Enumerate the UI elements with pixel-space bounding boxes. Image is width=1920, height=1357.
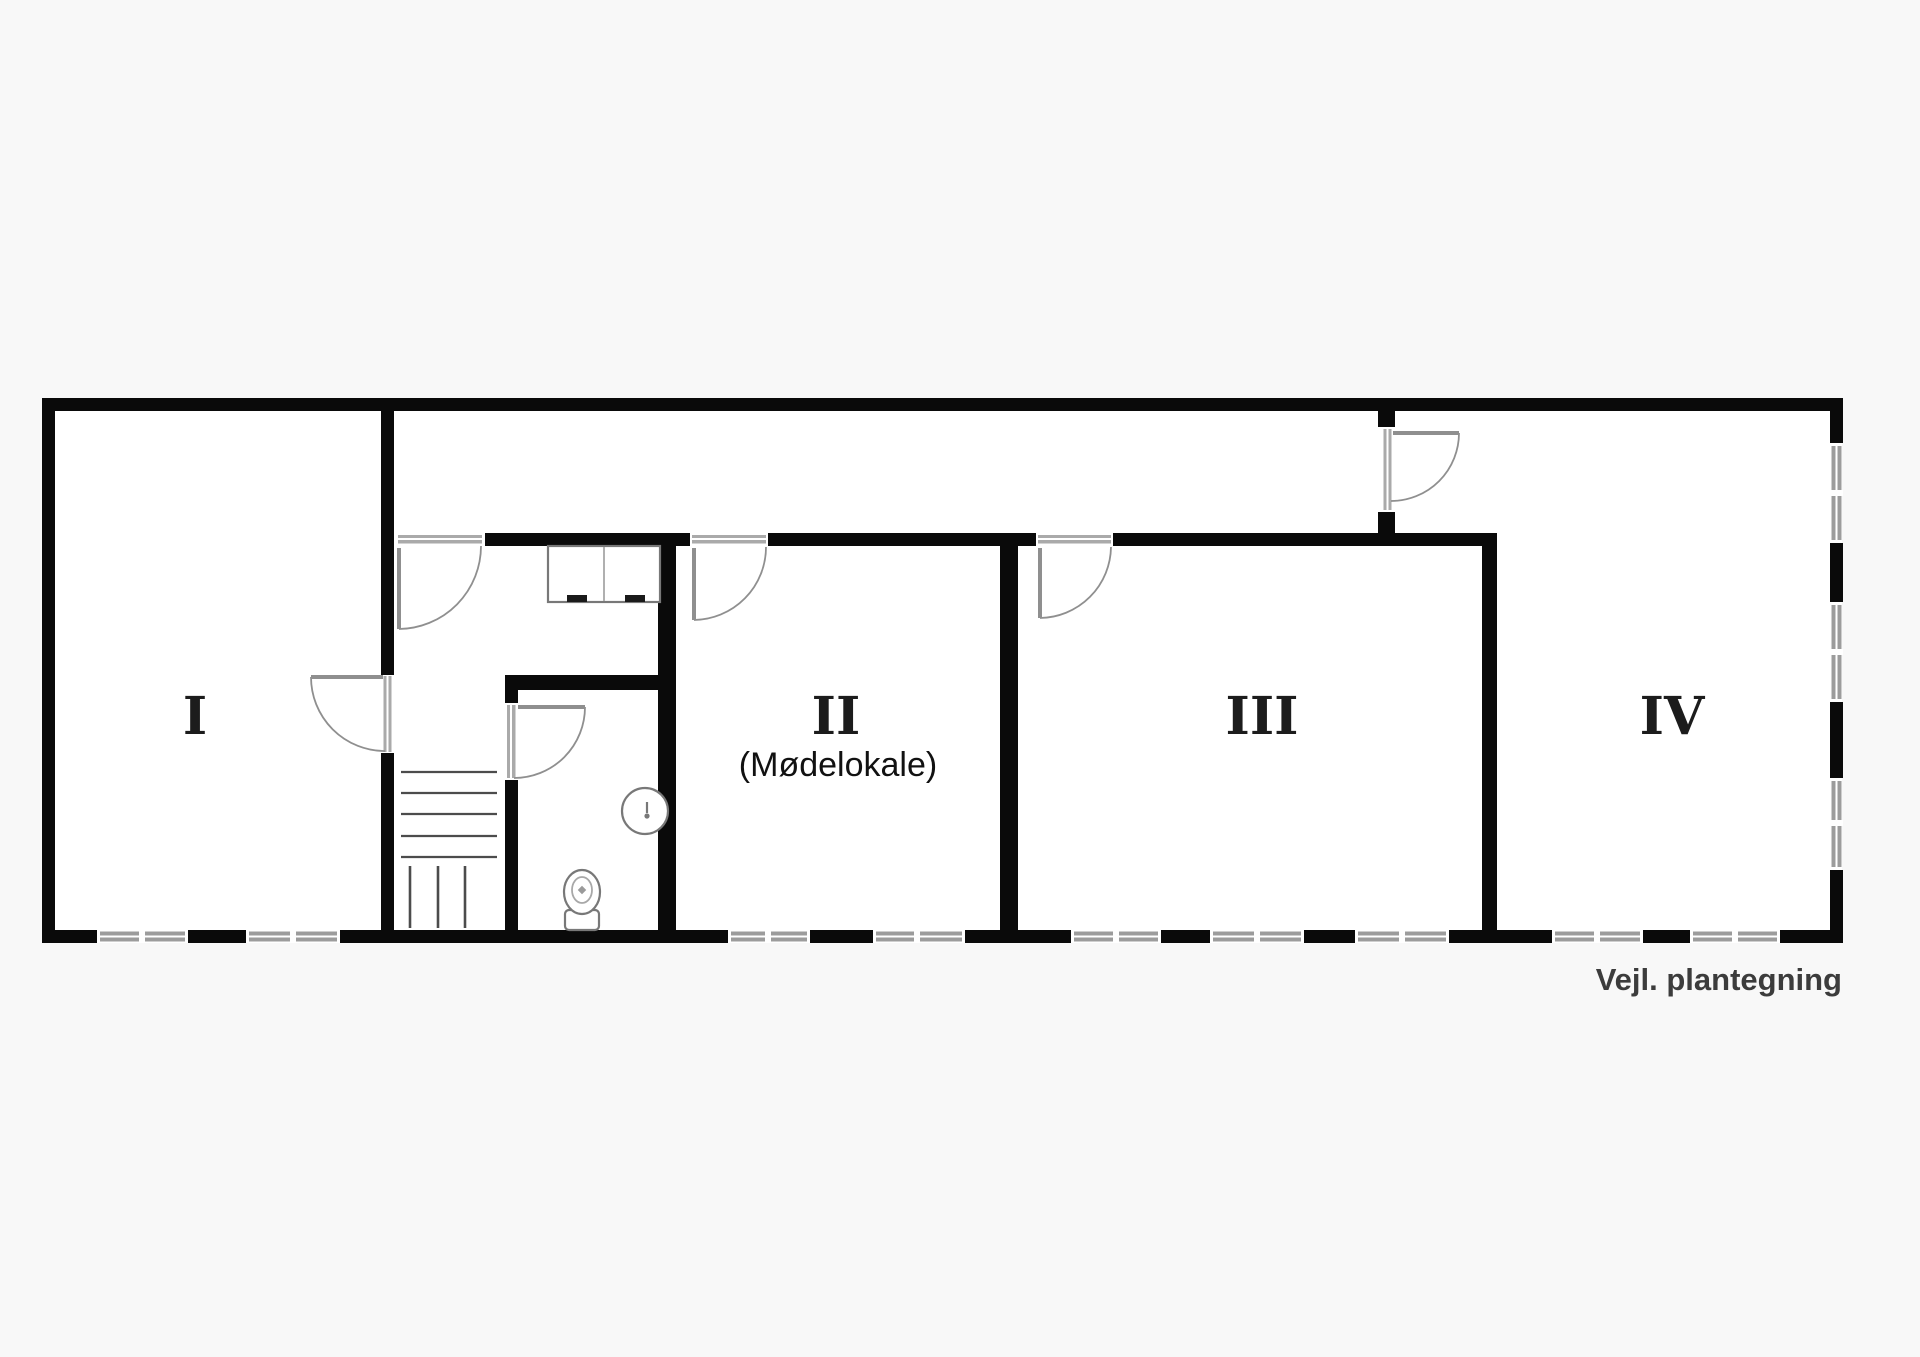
wall-room2-room3 bbox=[1000, 533, 1018, 930]
room4-door-jamb-top bbox=[1378, 411, 1395, 427]
wall-room1-lower bbox=[381, 753, 394, 930]
room-3-label: III bbox=[1226, 686, 1299, 747]
room-2-sublabel: (Mødelokale) bbox=[739, 746, 937, 784]
outer-wall-top bbox=[42, 398, 1842, 411]
outer-wall-left bbox=[42, 398, 55, 943]
wc-west-wall bbox=[505, 690, 518, 703]
plan-caption: Vejl. plantegning bbox=[1596, 962, 1842, 997]
room-2-label: II bbox=[812, 686, 861, 747]
building-floor bbox=[42, 398, 1842, 943]
outer-wall-bottom bbox=[42, 930, 97, 943]
floor-plan-drawing: I II (Mødelokale) III IV Vejl. plantegni… bbox=[0, 0, 1920, 1357]
wc-north-wall bbox=[505, 675, 658, 690]
floor-plan-page: I II (Mødelokale) III IV Vejl. plantegni… bbox=[0, 0, 1920, 1357]
wall-room3-room4 bbox=[1482, 533, 1497, 930]
right-windows bbox=[1830, 446, 1843, 867]
outer-wall-right bbox=[1830, 398, 1843, 443]
cabinet bbox=[548, 546, 660, 602]
toilet-icon bbox=[564, 870, 600, 930]
washbasin-icon bbox=[622, 788, 668, 834]
room-1-label: I bbox=[183, 686, 207, 747]
wall-room1-upper bbox=[381, 411, 394, 675]
room4-door-jamb-bottom bbox=[1378, 512, 1395, 533]
room-4-label: IV bbox=[1640, 686, 1706, 747]
